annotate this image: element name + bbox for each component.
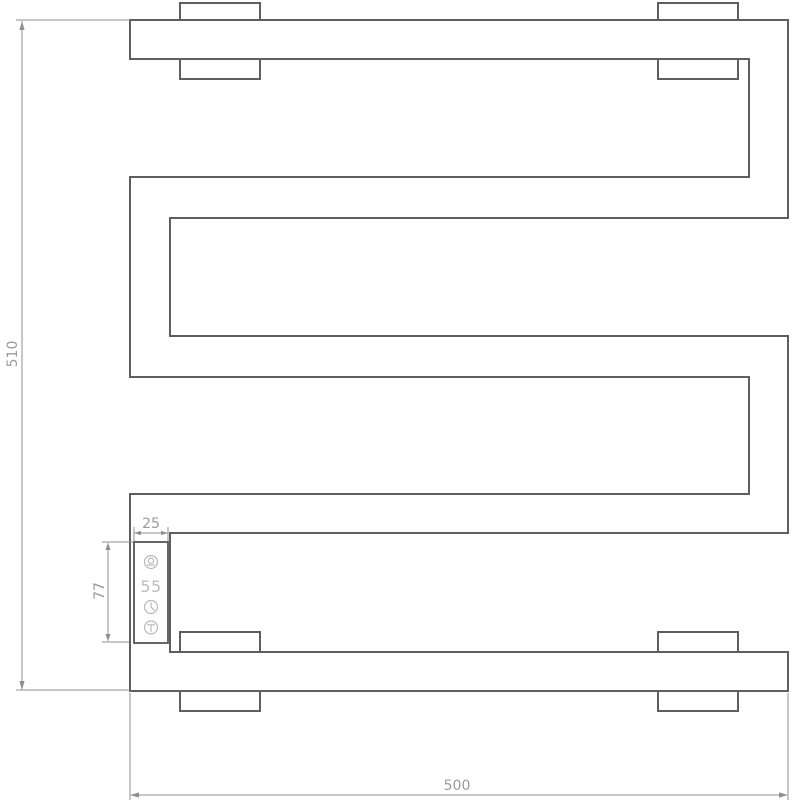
technical-drawing-page: 510 500 25 77 <box>0 0 800 800</box>
width-dimension-label: 500 <box>444 778 471 794</box>
towel-rail-drawing-canvas: 510 500 25 77 <box>0 0 800 800</box>
arrow-down-icon <box>19 681 24 690</box>
arrow-right-icon <box>779 792 788 797</box>
controller-width-label: 25 <box>142 516 160 532</box>
arrow-down-icon <box>105 634 110 641</box>
height-dimension: 510 <box>5 20 130 690</box>
control-box: 55 <box>134 542 168 643</box>
arrow-left-icon <box>130 792 139 797</box>
arrow-up-icon <box>19 21 24 30</box>
controller-height-label: 77 <box>92 582 108 600</box>
controller-height-dimension: 77 <box>92 542 133 642</box>
serpentine-tube-outline <box>130 20 788 691</box>
arrow-up-icon <box>105 543 110 550</box>
temperature-display: 55 <box>140 577 161 596</box>
height-dimension-label: 510 <box>5 341 21 368</box>
